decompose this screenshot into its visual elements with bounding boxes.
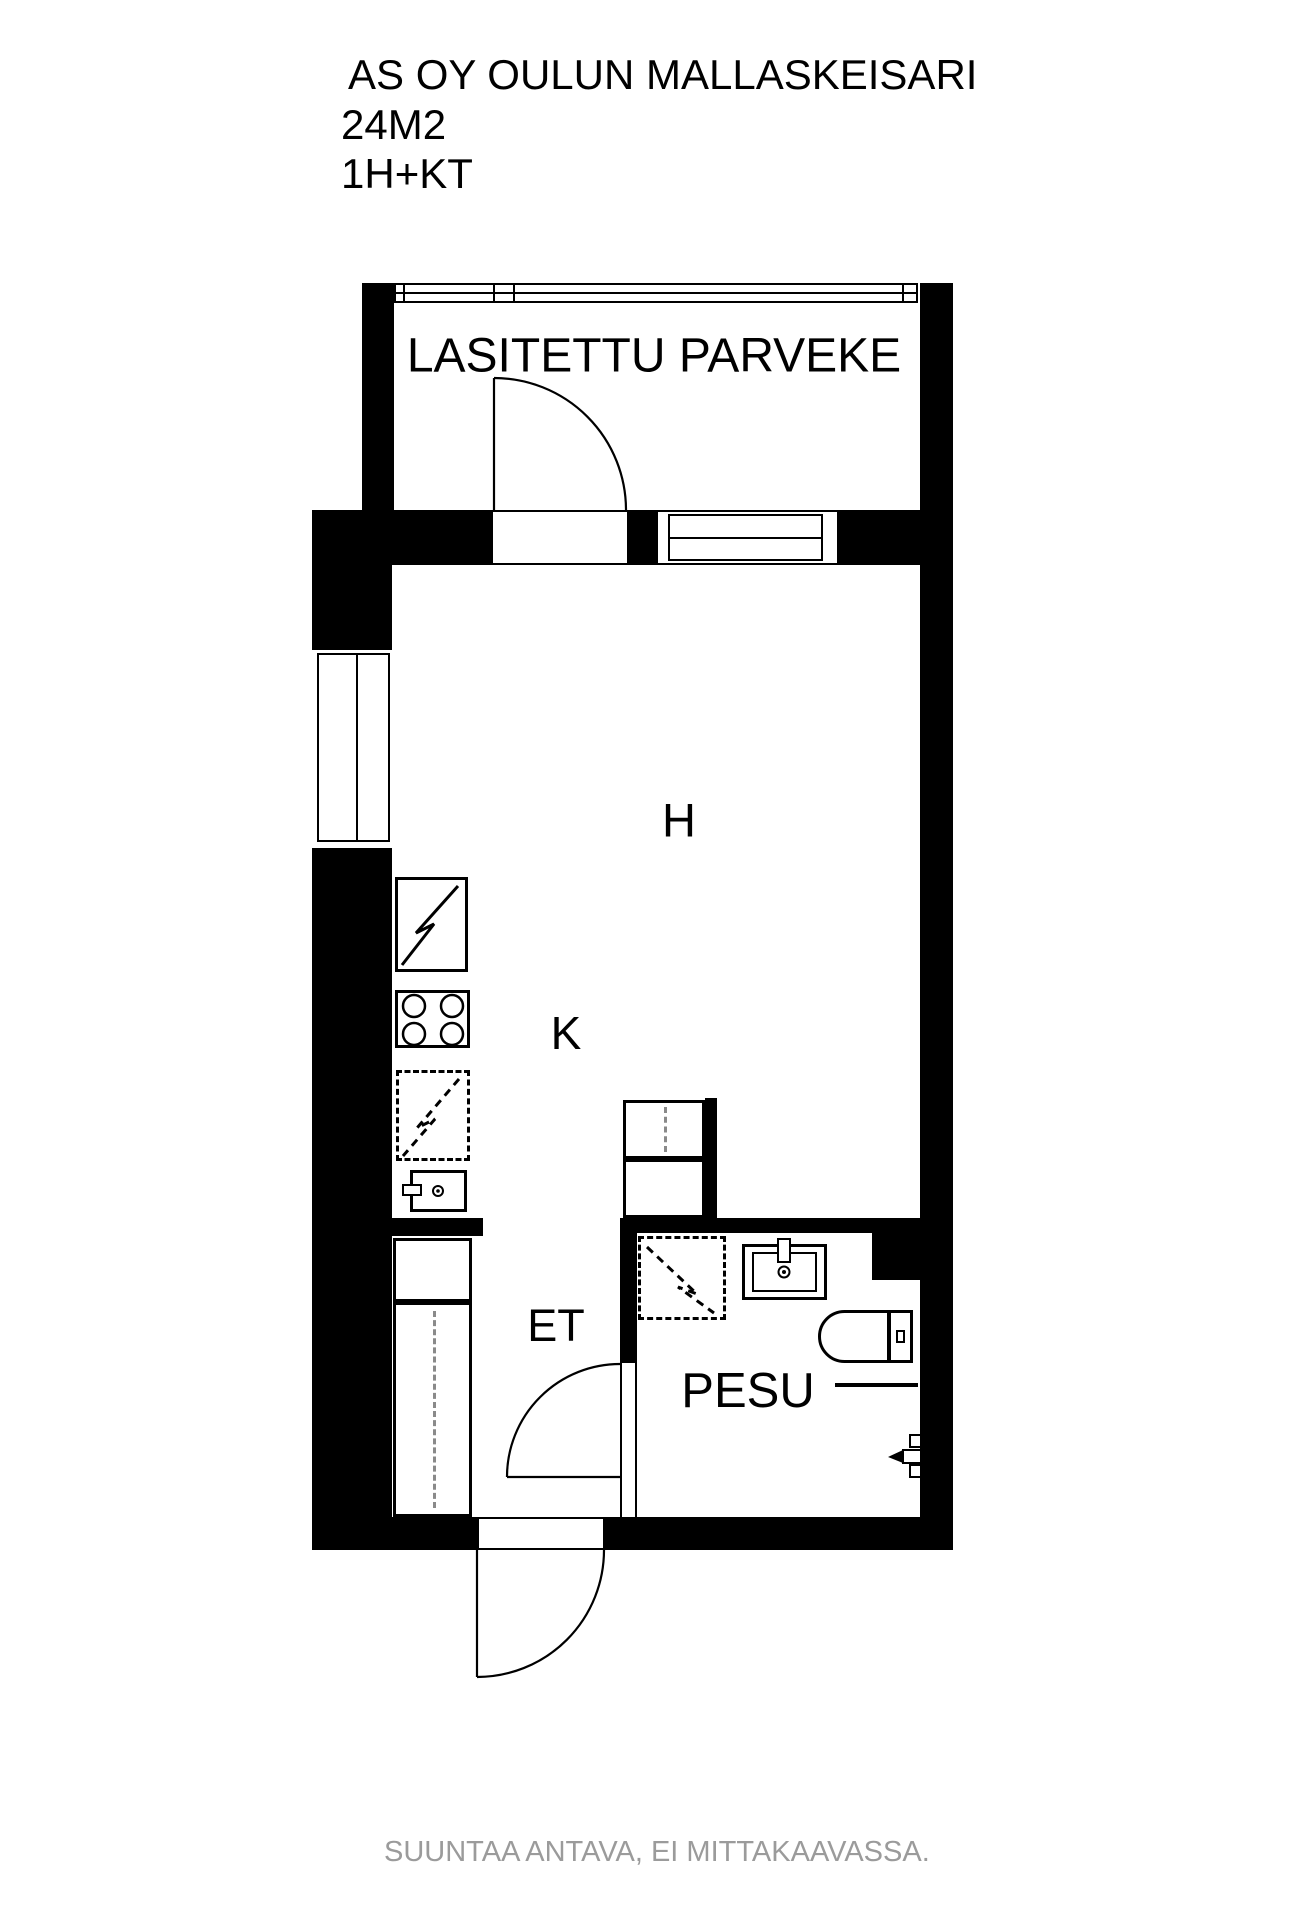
entry-label: ET <box>527 1300 585 1352</box>
wardrobe-upper <box>623 1100 705 1159</box>
balcony-room-wall-mid-segment <box>627 510 658 565</box>
living-room-window-bay <box>658 510 837 565</box>
floor-plan-canvas: AS OY OULUN MALLASKEISARI 24M2 1H+KT <box>0 0 1304 1920</box>
balcony-left-wall <box>362 283 394 510</box>
entry-closet-upper <box>393 1238 472 1302</box>
glazing-mullion <box>513 285 515 301</box>
plan-title: AS OY OULUN MALLASKEISARI <box>348 51 977 99</box>
bottom-wall-left <box>312 1517 477 1550</box>
glazing-mullion <box>403 285 405 301</box>
left-wall-window-bay <box>312 650 392 848</box>
kitchen-stub-wall <box>392 1218 483 1236</box>
fridge-box <box>395 877 468 972</box>
glazing-mullion <box>902 285 904 301</box>
toilet-bowl <box>818 1310 890 1363</box>
towel-rail <box>835 1383 918 1387</box>
balcony-door <box>494 378 626 510</box>
stove-box <box>395 990 470 1048</box>
window-mid-rail <box>670 537 821 539</box>
shower-mixer-icon <box>888 1435 921 1477</box>
toilet-flush-button <box>896 1330 905 1343</box>
footer-disclaimer: SUUNTAA ANTAVA, EI MITTAKAAVASSA. <box>384 1836 930 1869</box>
left-wall-window <box>317 653 390 842</box>
balcony-door-opening <box>493 510 627 565</box>
kitchen-faucet <box>402 1184 422 1196</box>
entrance-door <box>477 1550 604 1677</box>
wardrobe-lower <box>623 1159 705 1218</box>
living-room-label: H <box>662 793 696 848</box>
wardrobe-side-wall <box>705 1098 717 1218</box>
bathroom-door <box>507 1364 620 1477</box>
living-room-window <box>668 514 823 561</box>
left-exterior-wall-upper <box>312 565 392 650</box>
bathroom-label: PESU <box>681 1363 814 1419</box>
entrance-door-threshold <box>477 1517 605 1550</box>
plan-room-count: 1H+KT <box>341 150 473 198</box>
bathroom-door-opening <box>620 1363 637 1517</box>
right-exterior-wall <box>920 283 953 1550</box>
dishwasher-reservation-box <box>396 1070 470 1161</box>
glazing-mullion <box>493 285 495 301</box>
left-exterior-wall-main <box>312 848 392 1550</box>
balcony-room-wall-left-segment <box>312 510 493 565</box>
balcony-label: LASITETTU PARVEKE <box>407 329 901 384</box>
bottom-wall-right <box>605 1517 953 1550</box>
washer-reservation-box <box>638 1236 726 1320</box>
closet-dashed-rail <box>433 1311 436 1508</box>
bathroom-corner-block <box>872 1233 920 1280</box>
wardrobe-dashed-rail <box>664 1107 667 1152</box>
plan-area: 24M2 <box>341 101 446 149</box>
bathroom-faucet <box>777 1238 791 1263</box>
glazing-mid-rail <box>396 292 916 294</box>
kitchen-label: K <box>551 1006 582 1060</box>
bathroom-left-wall <box>620 1233 637 1363</box>
balcony-glazing-band <box>394 283 918 303</box>
bathroom-top-wall <box>620 1218 953 1233</box>
entry-closet-lower <box>393 1302 472 1517</box>
window-center-mullion <box>356 655 358 840</box>
balcony-room-wall-right-segment <box>837 510 920 565</box>
